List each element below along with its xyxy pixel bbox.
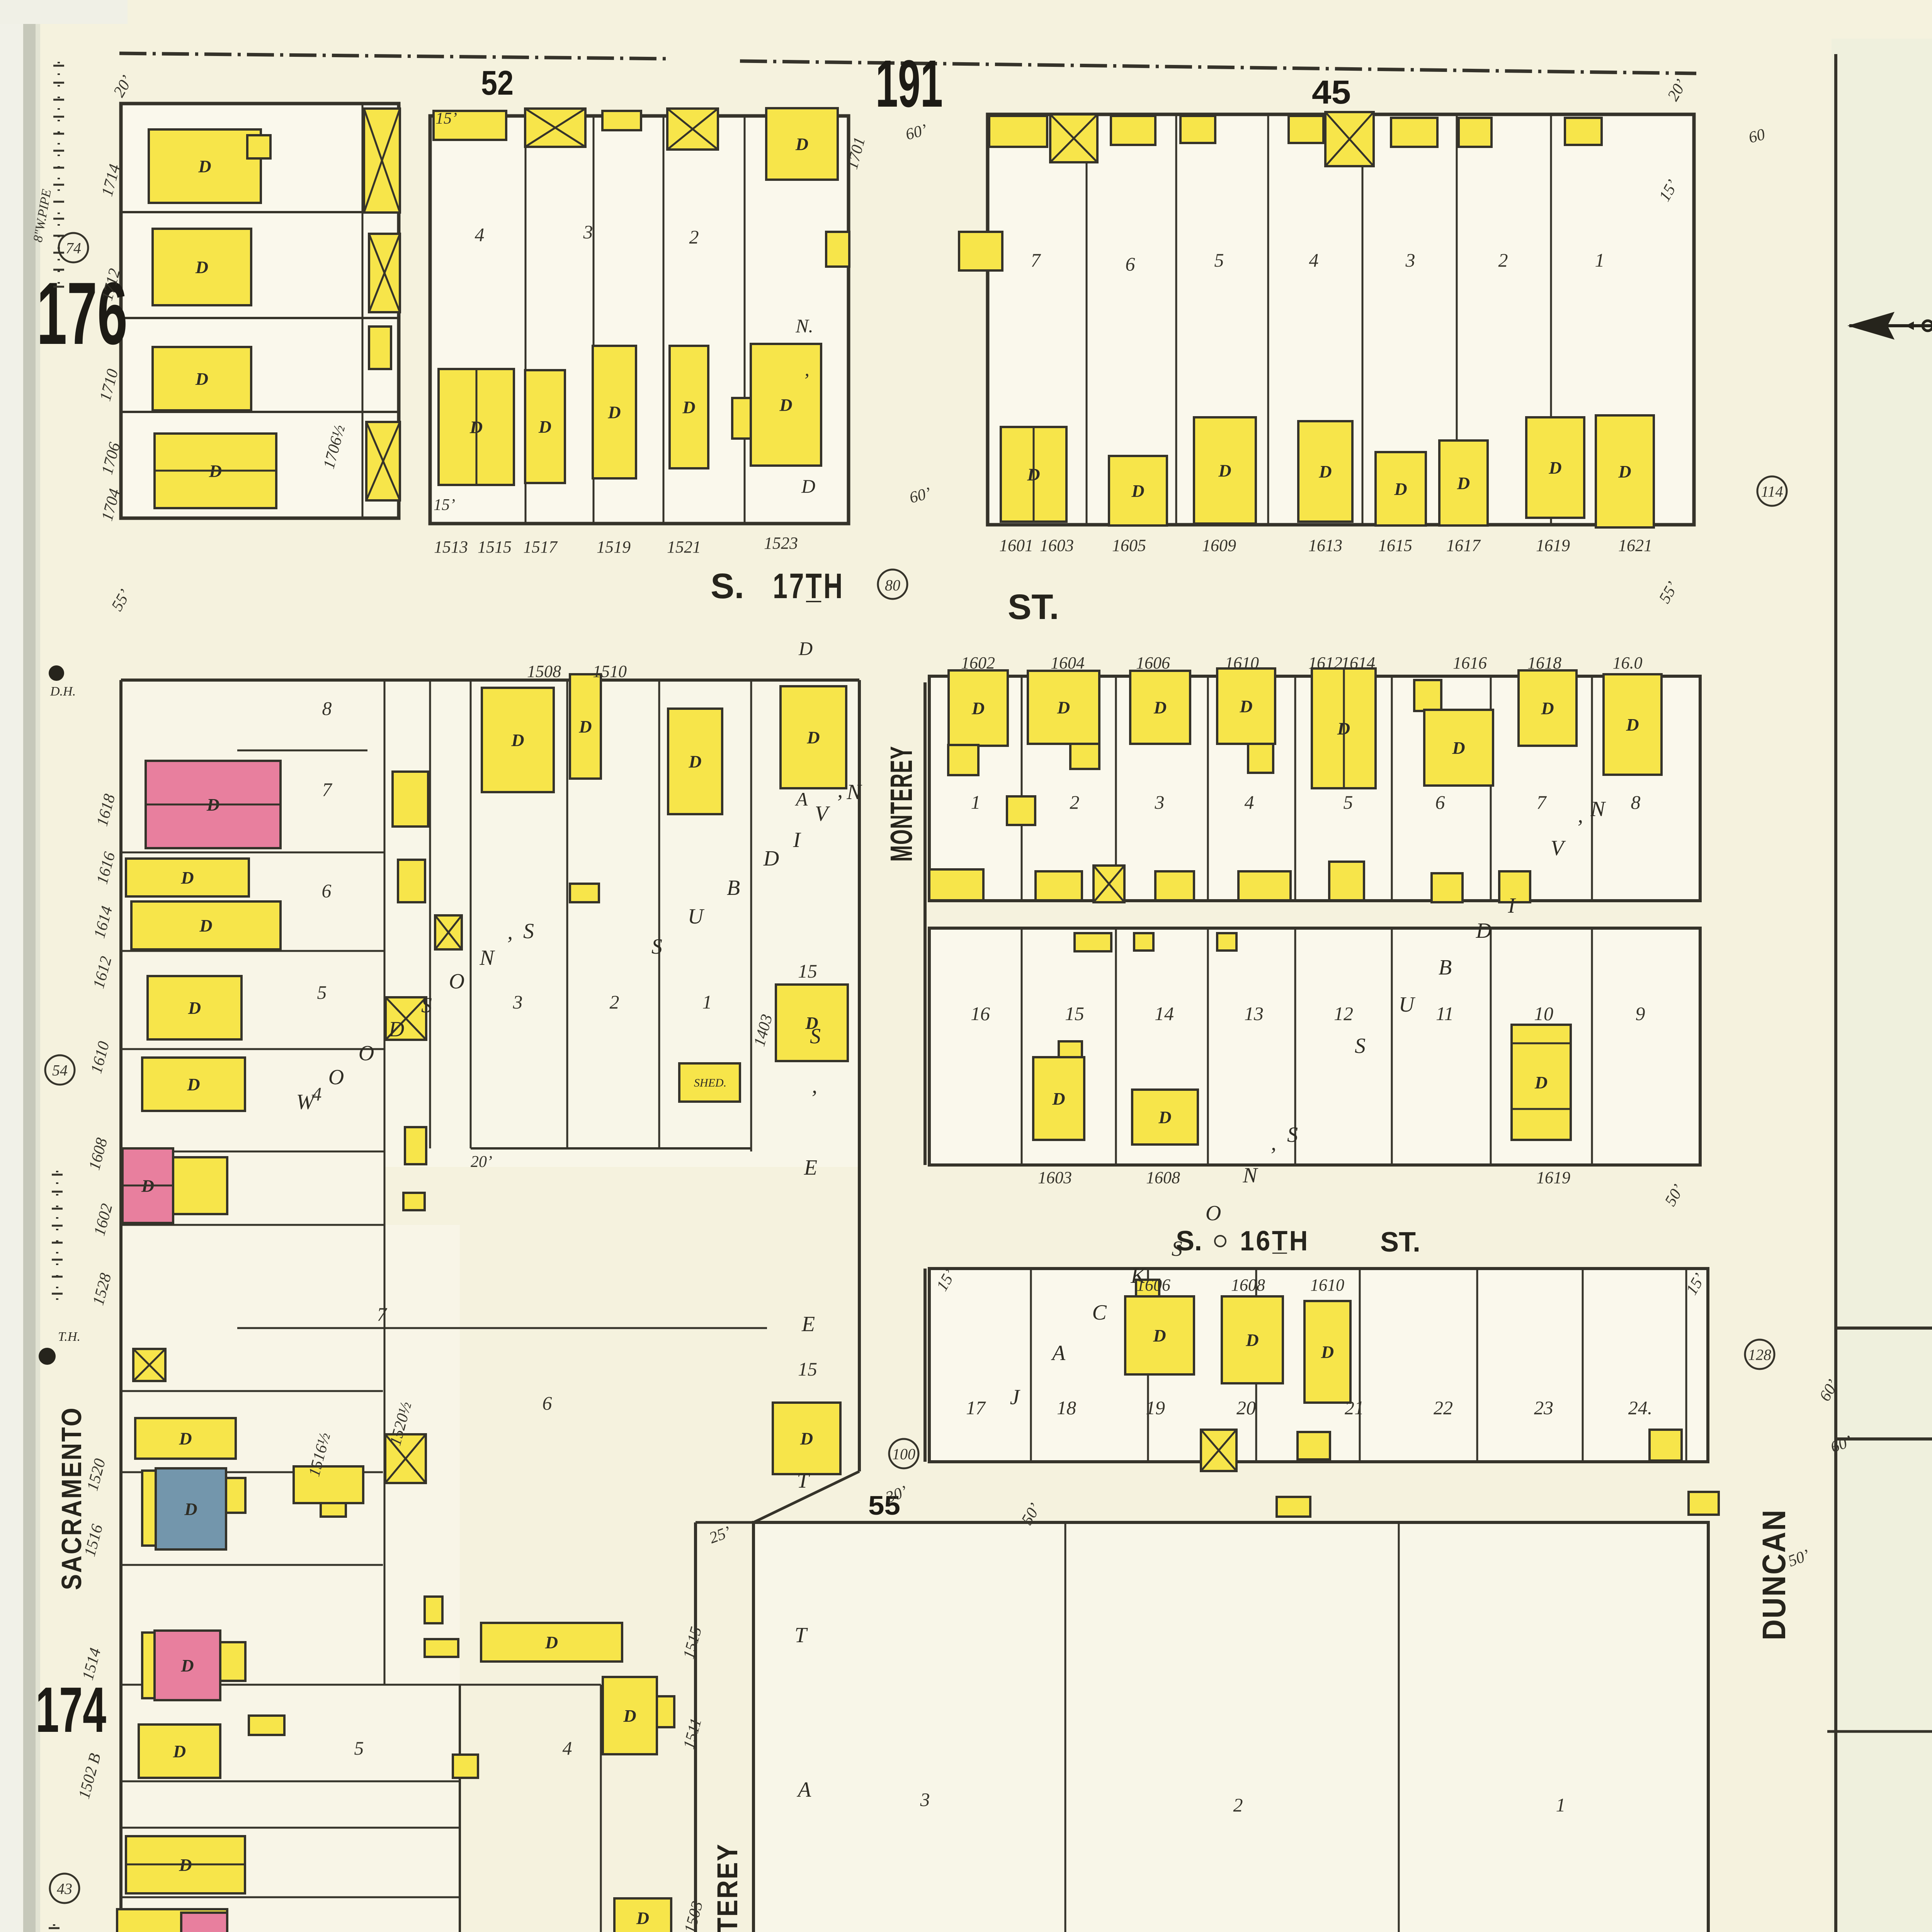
svg-text:D: D [199, 916, 212, 935]
svg-text:E: E [801, 1312, 815, 1336]
svg-text:D: D [763, 847, 779, 871]
svg-text:74: 74 [66, 239, 81, 257]
svg-text:1513: 1513 [434, 537, 468, 556]
svg-text:D: D [779, 395, 792, 415]
svg-text:D: D [1318, 462, 1332, 481]
svg-text:20: 20 [1236, 1397, 1256, 1418]
svg-text:24.: 24. [1628, 1397, 1653, 1418]
svg-text:D: D [1153, 1326, 1166, 1345]
svg-text:43: 43 [57, 1880, 72, 1897]
svg-text:7: 7 [1537, 791, 1547, 813]
svg-text:D: D [1153, 698, 1167, 718]
svg-text:D: D [184, 1499, 197, 1519]
svg-text:8: 8 [1631, 791, 1641, 813]
svg-text:D: D [1158, 1107, 1171, 1127]
svg-text:SACRAMENTO: SACRAMENTO [56, 1406, 87, 1590]
svg-text:V: V [815, 802, 830, 826]
svg-text:E: E [804, 1156, 817, 1180]
svg-text:S: S [651, 935, 662, 959]
svg-text:C: C [1092, 1301, 1107, 1325]
svg-text:7: 7 [322, 779, 333, 800]
svg-text:D: D [1626, 715, 1639, 735]
svg-text:D: D [195, 369, 208, 389]
svg-text:1601: 1601 [999, 536, 1033, 555]
svg-text:1609: 1609 [1202, 536, 1236, 555]
svg-text:4: 4 [1245, 791, 1254, 813]
svg-text:7: 7 [1031, 249, 1041, 271]
svg-text:114: 114 [1761, 483, 1783, 500]
svg-text:J: J [1010, 1385, 1021, 1409]
svg-text:1: 1 [971, 791, 981, 813]
svg-text:1602: 1602 [961, 653, 995, 672]
svg-text:14: 14 [1155, 1003, 1174, 1024]
svg-text:1610: 1610 [1310, 1276, 1344, 1294]
svg-text:1606: 1606 [1136, 653, 1170, 672]
svg-text:16.0: 16.0 [1613, 653, 1643, 672]
svg-text:’: ’ [803, 369, 809, 391]
svg-text:1519: 1519 [597, 537, 631, 556]
svg-text:ST.: ST. [1008, 587, 1059, 627]
svg-text:D: D [682, 398, 695, 417]
svg-text:D: D [198, 156, 211, 176]
svg-text:4: 4 [312, 1083, 322, 1105]
svg-text:18: 18 [1057, 1397, 1076, 1418]
svg-text:D: D [180, 1656, 194, 1675]
svg-text:MONTEREY: MONTEREY [884, 746, 918, 862]
svg-text:D: D [1321, 1342, 1334, 1362]
svg-text:1619: 1619 [1536, 536, 1570, 555]
svg-text:2: 2 [1498, 249, 1508, 271]
svg-text:13: 13 [1244, 1003, 1264, 1024]
svg-text:3: 3 [583, 221, 593, 243]
svg-text:3: 3 [920, 1789, 930, 1810]
svg-text:D: D [511, 730, 524, 750]
svg-text:D.H.: D.H. [50, 684, 76, 699]
svg-text:D: D [798, 638, 813, 659]
svg-text:D: D [636, 1908, 649, 1928]
svg-text:80: 80 [885, 577, 900, 594]
svg-text:S: S [1172, 1237, 1182, 1261]
svg-text:U: U [1399, 993, 1416, 1017]
svg-text:D: D [1394, 479, 1407, 499]
svg-text:’: ’ [505, 932, 512, 956]
svg-text:D: D [187, 1075, 200, 1094]
svg-text:1523: 1523 [764, 534, 798, 553]
svg-text:D: D [1245, 1330, 1259, 1350]
svg-text:1521: 1521 [667, 537, 701, 556]
svg-text:O: O [328, 1065, 344, 1089]
svg-text:SHED.: SHED. [694, 1077, 726, 1089]
svg-text:N: N [1242, 1163, 1258, 1187]
svg-text:191: 191 [876, 46, 943, 121]
svg-text:’: ’ [835, 791, 842, 815]
svg-text:U: U [688, 905, 705, 929]
svg-text:1605: 1605 [1112, 536, 1146, 555]
svg-text:S: S [1287, 1123, 1298, 1147]
svg-text:6: 6 [543, 1392, 552, 1414]
svg-text:17: 17 [966, 1397, 986, 1418]
svg-text:45: 45 [1312, 74, 1351, 111]
svg-text:D: D [188, 998, 201, 1018]
svg-text:D: D [179, 1429, 192, 1449]
svg-text:I: I [1508, 894, 1516, 918]
svg-text:S.: S. [711, 566, 744, 606]
svg-text:D: D [607, 403, 621, 422]
svg-text:174: 174 [36, 1674, 106, 1746]
svg-text:1604: 1604 [1051, 653, 1085, 672]
svg-text:15’: 15’ [434, 496, 455, 514]
svg-text:2: 2 [689, 226, 699, 248]
svg-text:B: B [1439, 956, 1452, 980]
svg-text:3: 3 [1405, 249, 1415, 271]
svg-text:1618: 1618 [1527, 653, 1561, 672]
svg-text:T: T [794, 1623, 808, 1647]
svg-text:N: N [1590, 797, 1606, 821]
svg-text:2: 2 [1233, 1794, 1243, 1816]
svg-text:4: 4 [563, 1737, 572, 1759]
svg-text:6: 6 [322, 880, 332, 901]
svg-text:’: ’ [810, 1086, 817, 1110]
svg-text:16T̲H: 16T̲H [1240, 1226, 1310, 1257]
svg-text:D: D [388, 1017, 404, 1041]
svg-text:1612: 1612 [1308, 653, 1342, 672]
svg-text:3: 3 [1155, 791, 1165, 813]
svg-text:1610: 1610 [1225, 653, 1259, 672]
svg-text:D: D [688, 752, 701, 772]
svg-text:D: D [180, 868, 194, 888]
svg-text:15: 15 [798, 960, 817, 982]
svg-text:D: D [545, 1633, 558, 1652]
svg-text:N: N [479, 946, 495, 970]
svg-text:1603: 1603 [1040, 536, 1074, 555]
svg-text:17T̲H: 17T̲H [773, 566, 844, 606]
svg-text:54: 54 [52, 1061, 68, 1079]
svg-text:9: 9 [1636, 1003, 1645, 1024]
svg-text:4: 4 [475, 224, 485, 245]
svg-text:N.: N. [795, 315, 813, 337]
svg-text:O: O [1206, 1201, 1221, 1225]
svg-text:2: 2 [610, 991, 619, 1013]
svg-text:DUNCAN: DUNCAN [1756, 1509, 1792, 1640]
svg-text:D: D [1618, 462, 1631, 481]
svg-text:S: S [167, 1930, 177, 1932]
svg-text:D: D [578, 717, 592, 736]
svg-text:D: D [623, 1706, 636, 1726]
svg-text:6: 6 [1126, 253, 1135, 275]
svg-text:1515: 1515 [478, 537, 512, 556]
svg-text:S: S [421, 993, 432, 1017]
svg-text:D: D [1457, 473, 1470, 493]
svg-text:V: V [1551, 836, 1566, 860]
svg-text:5: 5 [1344, 791, 1353, 813]
svg-text:MONTEREY: MONTEREY [711, 1843, 743, 1932]
svg-text:D: D [1218, 461, 1231, 481]
svg-text:A: A [795, 788, 808, 810]
svg-text:1621: 1621 [1618, 536, 1652, 555]
svg-text:1616: 1616 [1453, 653, 1487, 672]
svg-text:ST.: ST. [1380, 1227, 1420, 1258]
svg-text:1619: 1619 [1536, 1168, 1570, 1187]
svg-text:1508: 1508 [527, 662, 561, 681]
svg-text:1617: 1617 [1446, 536, 1481, 555]
svg-text:1608: 1608 [1146, 1168, 1180, 1187]
svg-text:D: D [1052, 1089, 1065, 1109]
svg-text:I: I [793, 828, 801, 852]
svg-text:S: S [810, 1024, 821, 1048]
svg-text:O: O [449, 969, 464, 993]
svg-text:1510: 1510 [593, 662, 627, 681]
svg-text:D: D [1131, 481, 1144, 501]
svg-text:6: 6 [1435, 791, 1445, 813]
svg-text:D: D [971, 699, 985, 718]
svg-text:3: 3 [513, 991, 523, 1013]
svg-text:D: D [795, 134, 808, 154]
svg-text:21: 21 [1345, 1397, 1364, 1418]
svg-text:16: 16 [971, 1003, 990, 1024]
svg-text:B: B [727, 876, 740, 900]
svg-text:4: 4 [1309, 249, 1319, 271]
svg-text:A: A [1051, 1341, 1066, 1365]
svg-text:D: D [538, 417, 551, 437]
svg-text:1: 1 [702, 991, 712, 1013]
svg-text:23: 23 [1534, 1397, 1553, 1418]
svg-text:5: 5 [1214, 249, 1224, 271]
svg-text:T.H.: T.H. [58, 1330, 80, 1344]
svg-text:D: D [1541, 699, 1554, 718]
svg-text:1606: 1606 [1136, 1276, 1170, 1294]
svg-text:1517: 1517 [523, 537, 558, 556]
svg-text:N: N [846, 780, 862, 804]
svg-text:19: 19 [1146, 1397, 1165, 1418]
svg-text:D: D [195, 257, 208, 277]
svg-text:7: 7 [377, 1303, 388, 1325]
svg-text:D: D [173, 1742, 186, 1761]
svg-text:S: S [523, 919, 534, 943]
svg-text:D: D [1239, 697, 1252, 716]
svg-text:1: 1 [1556, 1794, 1566, 1816]
svg-text:15: 15 [1065, 1003, 1084, 1024]
svg-text:S: S [1355, 1034, 1366, 1058]
svg-text:8: 8 [322, 697, 332, 719]
svg-text:128: 128 [1748, 1346, 1771, 1363]
svg-text:1608: 1608 [1231, 1276, 1265, 1294]
svg-text:’: ’ [1269, 1143, 1276, 1167]
svg-text:5: 5 [354, 1737, 364, 1759]
svg-text:11: 11 [1436, 1003, 1454, 1024]
svg-text:1603: 1603 [1038, 1168, 1072, 1187]
svg-text:100: 100 [892, 1445, 915, 1463]
svg-text:D: D [1057, 698, 1070, 718]
svg-text:20’: 20’ [471, 1153, 492, 1171]
svg-text:D: D [806, 728, 820, 747]
svg-text:10: 10 [1534, 1003, 1553, 1024]
svg-text:1613: 1613 [1308, 536, 1342, 555]
svg-text:15’: 15’ [435, 110, 457, 128]
svg-text:D: D [1452, 738, 1465, 758]
svg-text:’: ’ [1575, 816, 1583, 840]
svg-text:D: D [1476, 919, 1492, 943]
svg-text:T: T [797, 1469, 810, 1493]
svg-text:2: 2 [1070, 791, 1080, 813]
svg-text:D: D [801, 475, 815, 497]
svg-text:22: 22 [1434, 1397, 1453, 1418]
svg-text:D: D [1548, 458, 1561, 478]
svg-text:12: 12 [1334, 1003, 1353, 1024]
svg-text:D: D [1534, 1073, 1548, 1092]
svg-text:1: 1 [1595, 249, 1605, 271]
svg-text:1615: 1615 [1378, 536, 1412, 555]
svg-text:52: 52 [481, 63, 514, 102]
svg-text:5: 5 [317, 981, 327, 1003]
svg-text:O: O [359, 1041, 374, 1065]
svg-text:15: 15 [798, 1358, 817, 1380]
svg-text:D: D [800, 1429, 813, 1449]
svg-text:1614: 1614 [1341, 653, 1375, 672]
svg-text:A: A [796, 1778, 811, 1802]
